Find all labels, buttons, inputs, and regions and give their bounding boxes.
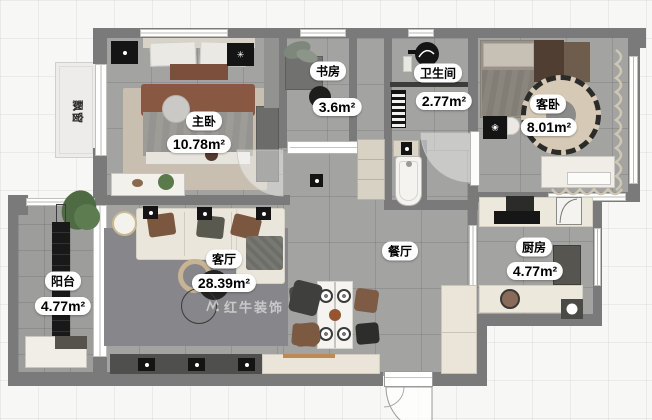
balcony-plant-leaf	[74, 204, 100, 230]
master-column	[264, 38, 279, 108]
guest-nightstand: ❀	[483, 116, 507, 139]
watermark: 红牛装饰	[205, 297, 284, 316]
nightstand-right: ✳	[227, 43, 254, 66]
dining-chair	[355, 322, 380, 345]
light-icon	[149, 211, 153, 215]
guest-right-window	[629, 56, 638, 184]
nightstand-left	[111, 41, 138, 64]
bathroom-top-window	[408, 29, 434, 37]
master-top-window	[140, 29, 228, 37]
label-living-room: 客厅	[206, 250, 242, 269]
kitchen-sink	[500, 289, 520, 309]
table-centerpiece	[329, 309, 341, 321]
dresser-plant	[158, 174, 174, 190]
label-guest-bedroom: 客卧	[530, 95, 566, 114]
dishwasher-door-icon	[567, 304, 578, 315]
wall-master-living	[93, 195, 290, 205]
entry-door-swing	[386, 387, 432, 420]
light-icon	[262, 212, 266, 216]
wall-bottom-left	[8, 372, 383, 386]
dresser-bowl	[132, 179, 143, 187]
area-master-bedroom: 10.78m²	[167, 135, 231, 153]
wall-entry-side	[477, 316, 487, 378]
area-bathroom: 2.77m²	[416, 92, 472, 110]
shoe-cabinet	[441, 285, 477, 374]
area-kitchen: 4.77m²	[507, 262, 563, 280]
master-pillow-left	[150, 41, 197, 67]
master-dresser	[111, 173, 185, 196]
speaker-icon	[245, 363, 249, 367]
flower-icon: ❀	[491, 123, 499, 132]
label-dining-room: 餐厅	[382, 242, 418, 261]
wall-bottom-right	[433, 372, 487, 386]
master-bed-foot	[146, 152, 250, 164]
wall-bathroom-guest-upper	[468, 38, 478, 134]
label-kitchen: 厨房	[516, 238, 552, 257]
side-table-round	[112, 211, 137, 236]
washer-door-icon	[405, 147, 409, 151]
shower-partition	[390, 82, 468, 87]
media-cabinet-wood-trim	[283, 354, 335, 358]
sofa-seam	[184, 212, 185, 256]
wall-balcony-corner	[8, 195, 28, 215]
bathroom-sink	[415, 42, 439, 66]
label-bathroom: 卫生间	[414, 64, 462, 83]
label-master-bedroom: 主卧	[186, 112, 222, 131]
bay-window	[95, 64, 107, 156]
study-top-window	[300, 29, 346, 37]
area-study: 3.6m²	[313, 98, 362, 116]
wall-balcony-left	[8, 195, 18, 375]
light-icon	[315, 179, 319, 183]
master-wardrobe	[256, 106, 279, 182]
bathtub-faucet	[406, 161, 412, 167]
hall-closet-shelf	[358, 159, 384, 160]
tv-speaker	[138, 358, 155, 371]
label-study: 书房	[310, 62, 346, 81]
dining-chair	[354, 288, 380, 314]
hall-light-switch	[310, 174, 323, 187]
tv-speaker	[238, 358, 255, 371]
cooktop	[494, 211, 540, 224]
bull-logo-icon	[205, 299, 220, 314]
tv-speaker	[188, 358, 205, 371]
plate	[337, 327, 351, 341]
towel-radiator	[391, 90, 406, 128]
speaker-icon	[145, 363, 149, 367]
master-pillow-accent	[170, 64, 228, 80]
bathroom-shelf	[403, 56, 412, 72]
entry-door-swing-small	[384, 387, 404, 407]
wall-light	[197, 207, 212, 220]
area-guest-bedroom: 8.01m²	[521, 118, 577, 136]
bathroom-faucet	[408, 50, 416, 54]
wall-left-upper	[93, 28, 107, 64]
dishwasher	[561, 299, 583, 319]
wall-study-hall	[349, 38, 357, 150]
bathtub-inner	[399, 161, 418, 201]
snowflake-icon: ✳	[237, 50, 245, 59]
washer-icon	[401, 142, 412, 155]
kitchen-sliding-door	[469, 225, 477, 287]
guest-keyboard	[567, 172, 611, 185]
speaker-icon	[195, 363, 199, 367]
balcony-cabinet-dark	[55, 336, 87, 349]
guest-pillows	[483, 43, 534, 67]
study-sliding-door-track	[290, 147, 358, 148]
kitchen-window	[594, 228, 601, 286]
entry-door-leaf	[384, 371, 433, 387]
plate	[319, 327, 333, 341]
wall-kitchen-bottom	[477, 314, 602, 326]
label-bay-window: 飘窗	[70, 100, 86, 124]
area-living-room: 28.39m²	[192, 274, 256, 292]
wall-light	[143, 206, 158, 219]
wall-balcony-living-stub	[93, 357, 107, 373]
lamp-icon	[123, 51, 127, 55]
watermark-text: 红牛装饰	[224, 297, 284, 316]
area-balcony: 4.77m²	[35, 297, 91, 315]
wall-light	[256, 207, 271, 220]
sofa-blanket	[246, 236, 283, 270]
light-icon	[203, 212, 207, 216]
guest-door-leaf	[470, 131, 480, 186]
fridge	[556, 197, 582, 225]
wall-kitchen-dining-upper	[468, 195, 477, 225]
pouf	[292, 322, 321, 348]
hall-closet	[357, 139, 385, 200]
floor-plan: ✳ ❀	[0, 0, 652, 420]
hall-closet-shelf2	[358, 179, 384, 180]
drying-rack-pole	[56, 204, 66, 224]
label-balcony: 阳台	[45, 272, 81, 291]
guest-round-rug	[521, 75, 601, 155]
plate	[337, 289, 351, 303]
bathtub	[395, 156, 422, 206]
